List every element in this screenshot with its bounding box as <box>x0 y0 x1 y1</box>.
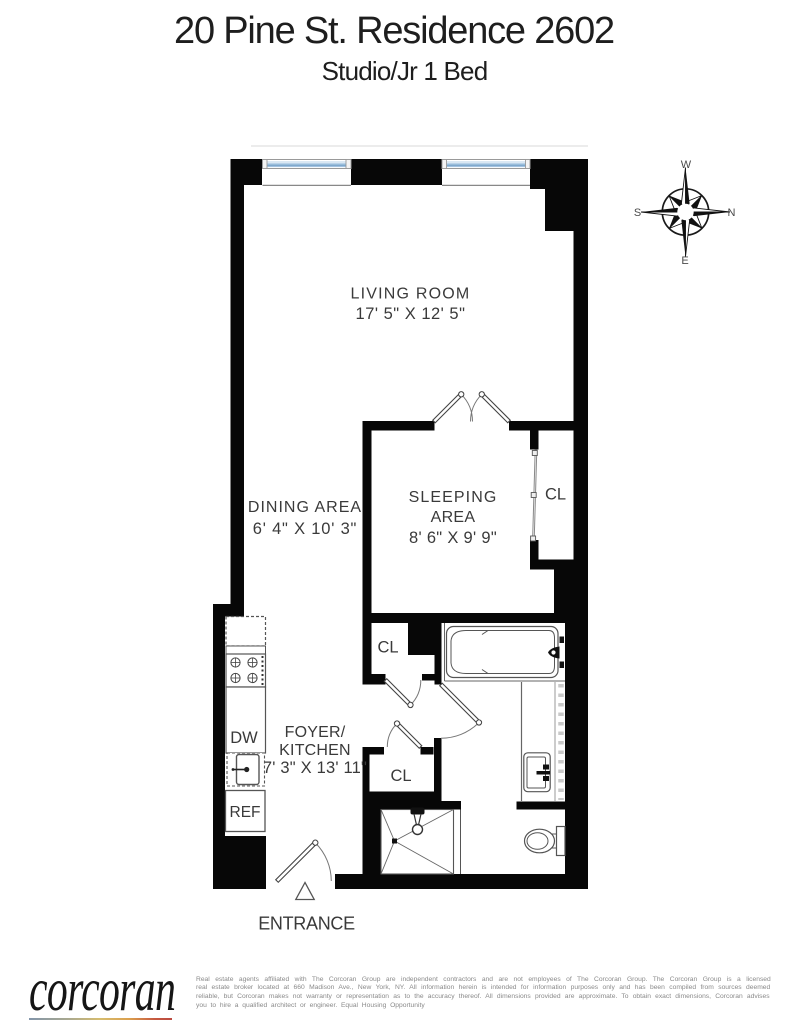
svg-text:6' 4" X 10' 3": 6' 4" X 10' 3" <box>253 520 357 538</box>
svg-text:W: W <box>681 159 692 171</box>
svg-text:CL: CL <box>545 486 566 504</box>
svg-text:7' 3" X 13' 11": 7' 3" X 13' 11" <box>263 759 367 777</box>
svg-text:CL: CL <box>390 767 411 785</box>
svg-text:CL: CL <box>377 639 398 657</box>
svg-text:N: N <box>728 207 736 219</box>
svg-text:E: E <box>681 255 688 267</box>
svg-text:FOYER/: FOYER/ <box>285 724 346 741</box>
svg-text:SLEEPING: SLEEPING <box>409 489 498 506</box>
svg-text:ENTRANCE: ENTRANCE <box>258 914 355 934</box>
svg-text:AREA: AREA <box>431 509 476 526</box>
svg-text:REF: REF <box>230 804 261 821</box>
svg-text:DINING AREA: DINING AREA <box>248 499 362 516</box>
svg-text:8' 6" X 9' 9": 8' 6" X 9' 9" <box>409 529 497 547</box>
svg-text:KITCHEN: KITCHEN <box>279 742 351 759</box>
svg-text:DW: DW <box>230 729 258 747</box>
svg-text:LIVING ROOM: LIVING ROOM <box>351 286 471 303</box>
svg-text:17' 5" X 12' 5": 17' 5" X 12' 5" <box>356 305 466 323</box>
svg-text:S: S <box>634 207 641 219</box>
